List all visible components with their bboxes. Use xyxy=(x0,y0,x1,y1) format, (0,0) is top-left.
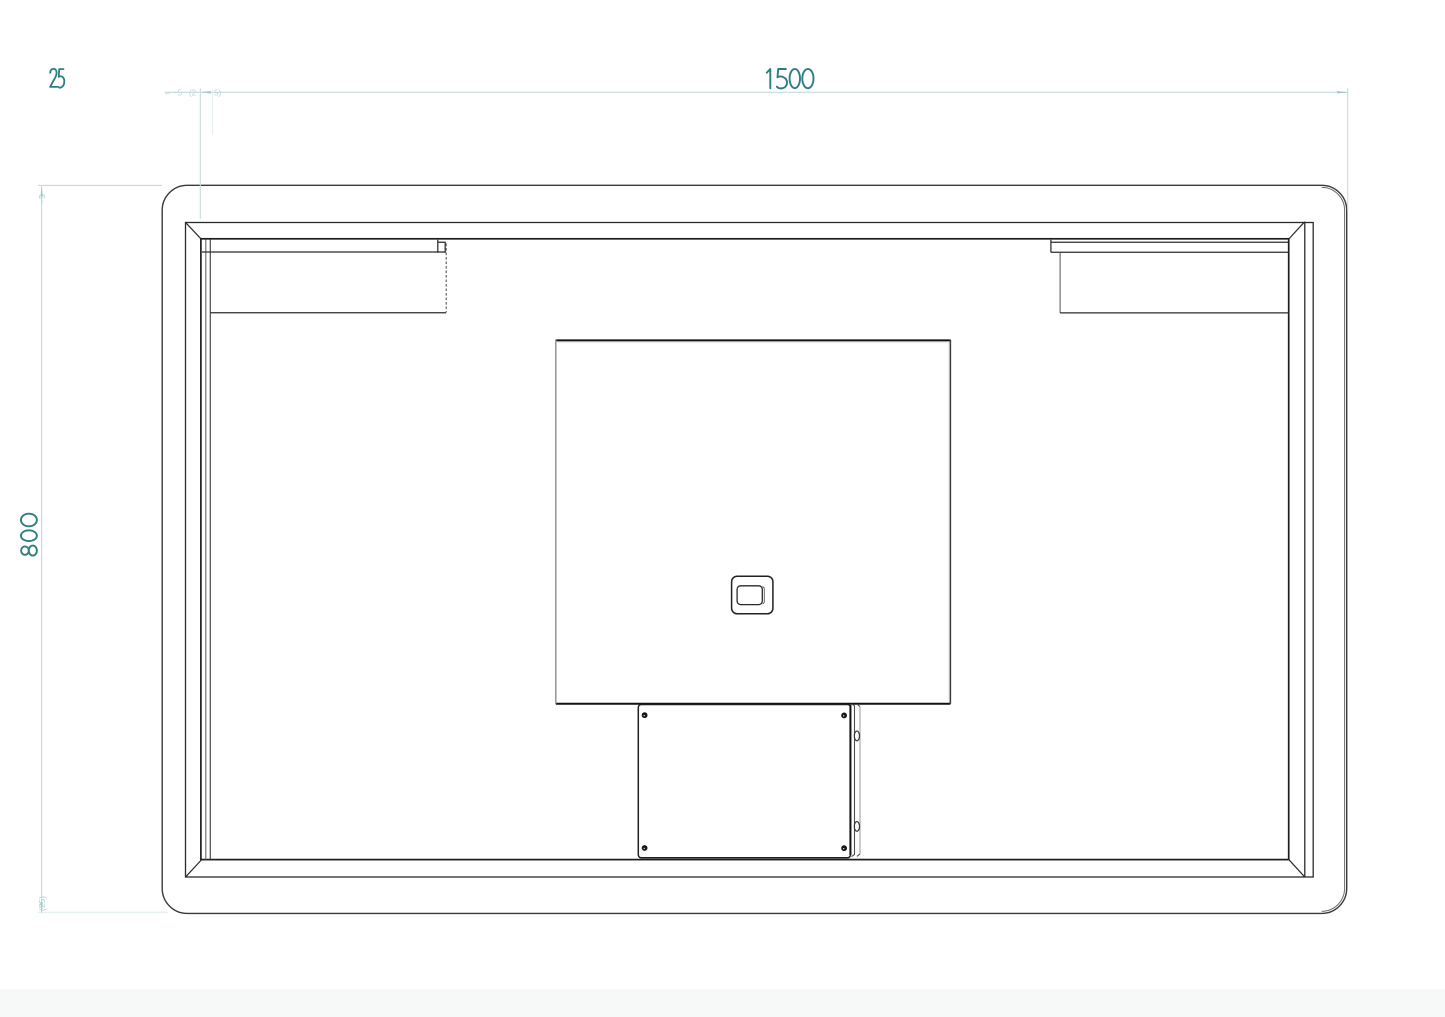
svg-text:(25): (25) xyxy=(37,896,47,911)
svg-text:~5: ~5 xyxy=(173,88,183,97)
svg-text:~5: ~5 xyxy=(37,194,47,204)
svg-text:←: ← xyxy=(164,88,172,97)
svg-text:5): 5) xyxy=(214,88,221,97)
svg-text:(2: (2 xyxy=(189,88,197,97)
